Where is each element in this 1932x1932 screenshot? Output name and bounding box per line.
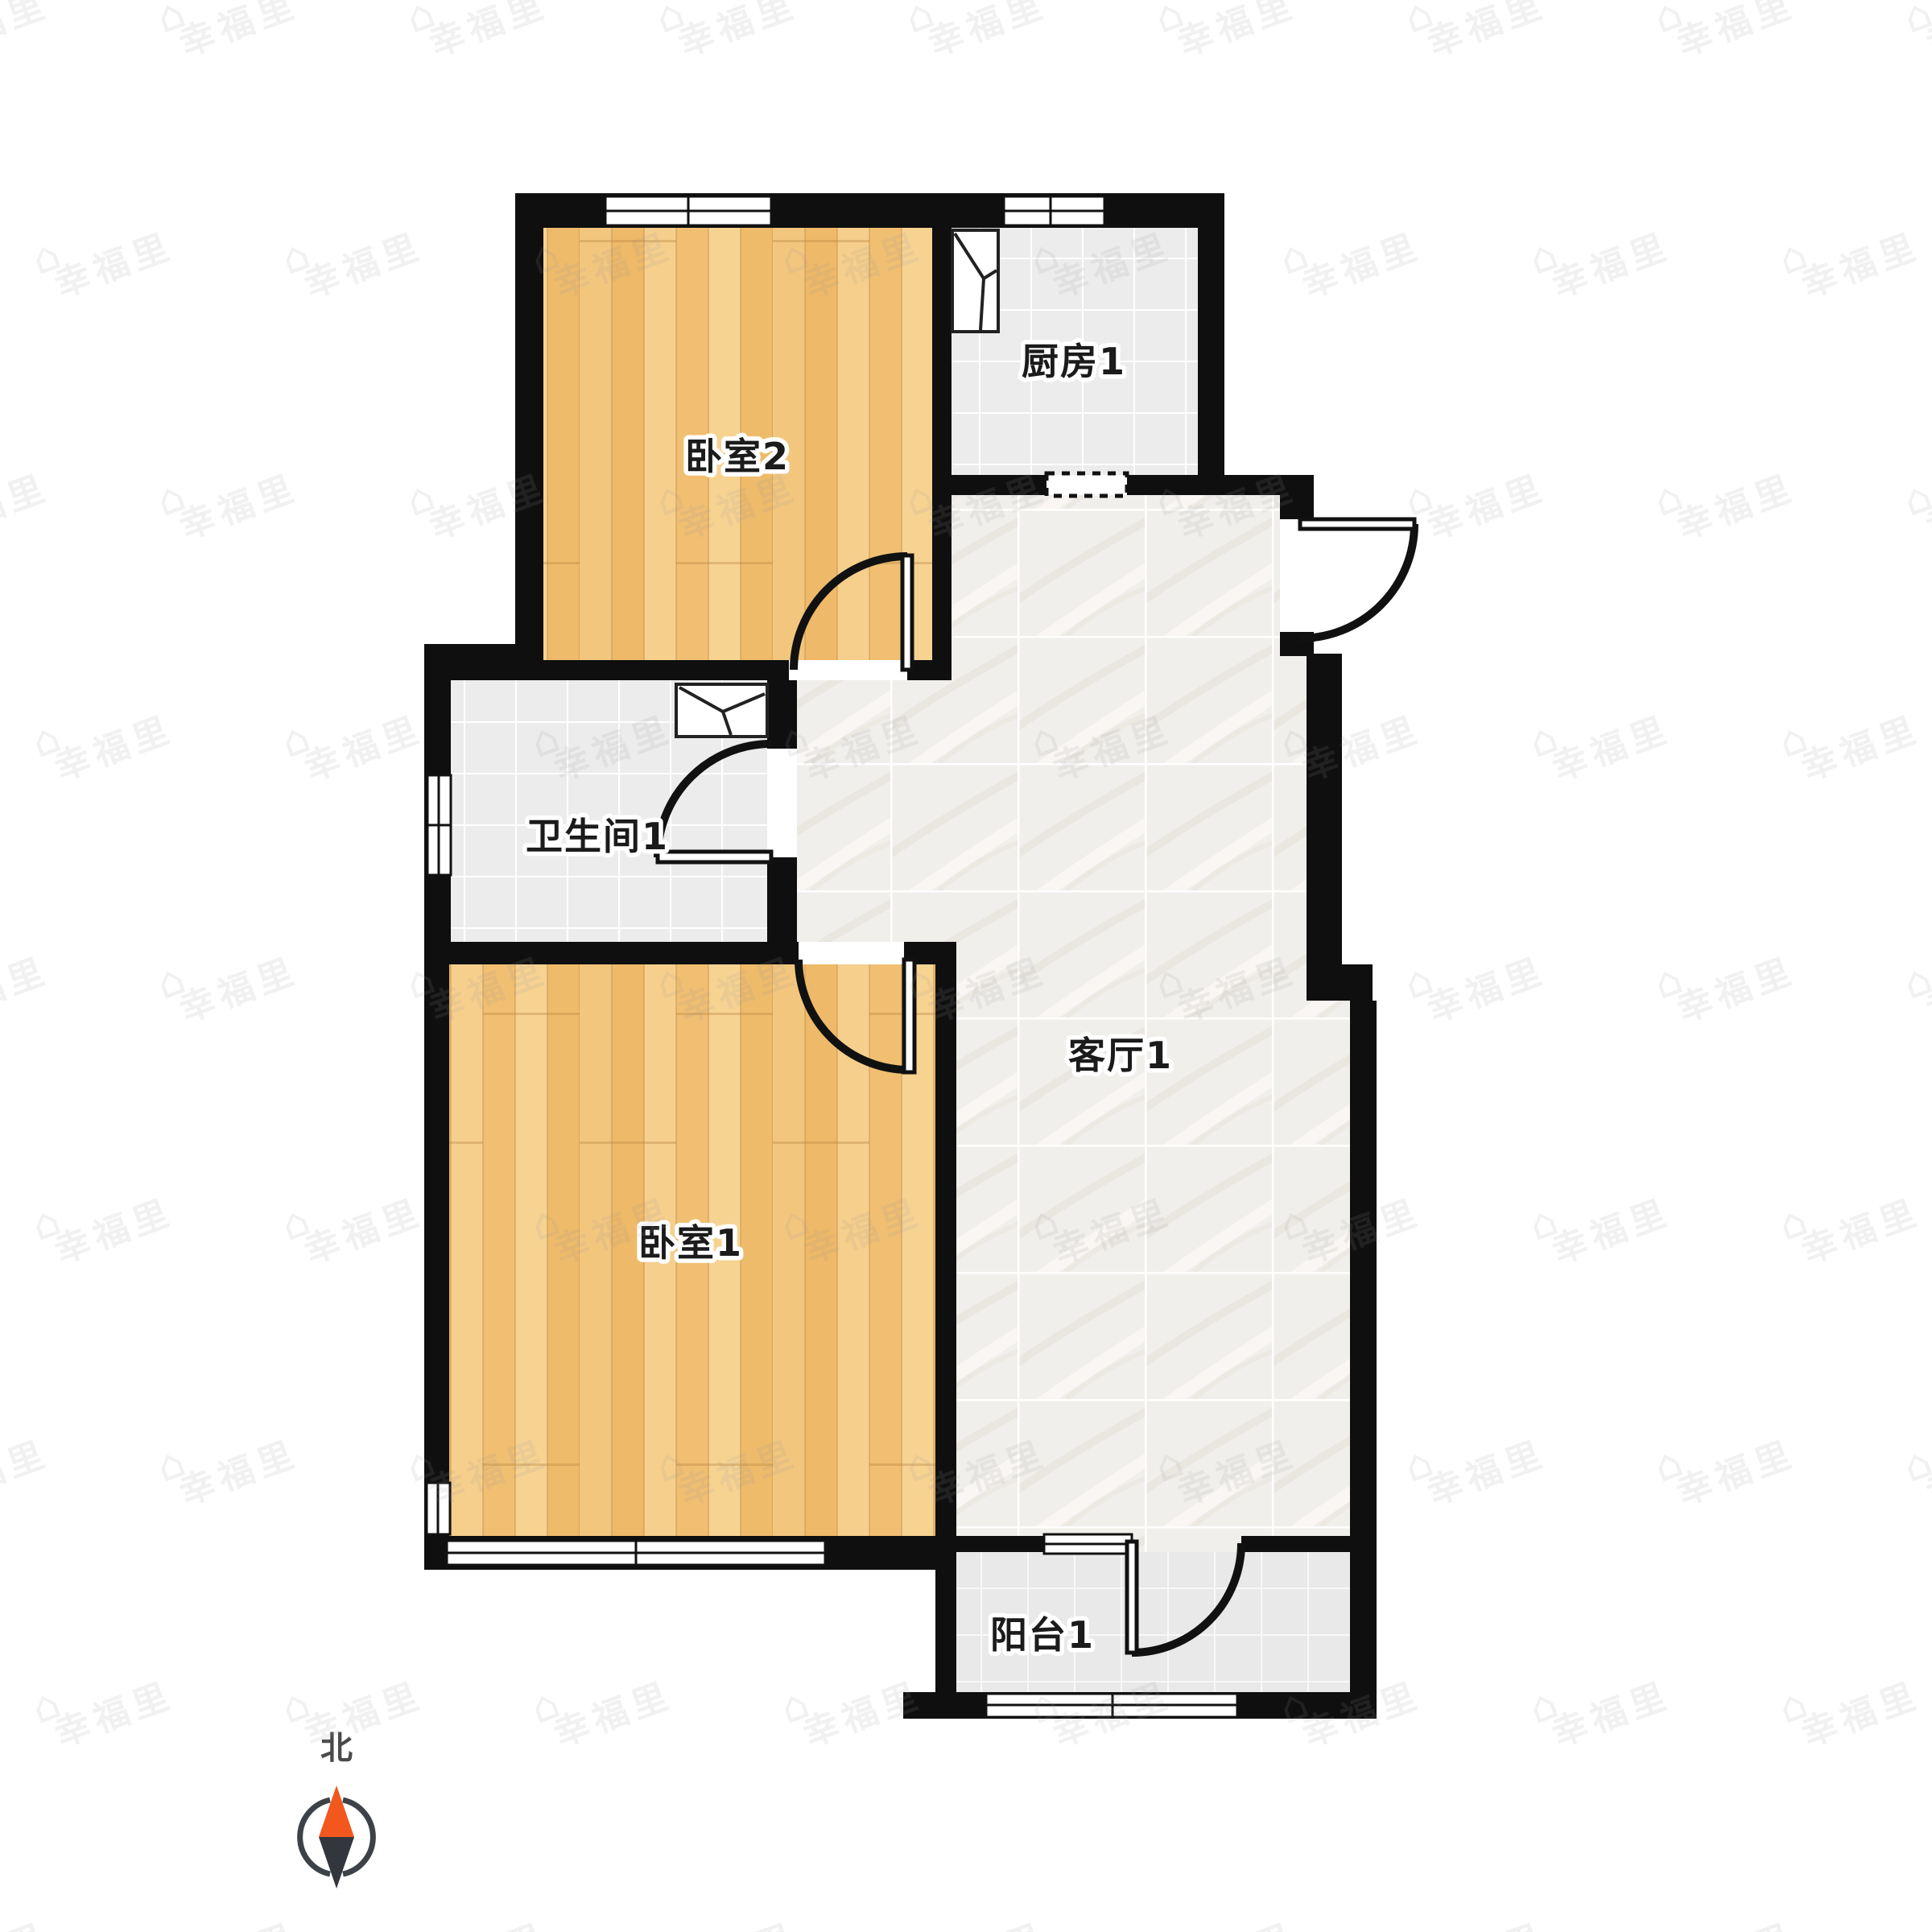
label-living: 客厅1 [1068, 1034, 1173, 1077]
watermark-house-icon: ⌂ [1648, 1921, 1690, 1932]
watermark-text: 幸福里 [1546, 708, 1676, 789]
watermark-text: 幸福里 [673, 1916, 803, 1932]
label-kitchen: 厨房1 [1022, 340, 1126, 383]
window-living-balcony [1044, 1534, 1132, 1554]
watermark-text: 幸福里 [798, 1674, 927, 1755]
watermark-text: 幸福里 [423, 1916, 553, 1932]
watermark-text: 幸福里 [1172, 1916, 1302, 1932]
window-bedroom2-top [605, 196, 771, 225]
watermark-text: 幸福里 [174, 950, 303, 1030]
watermark-item: ⌂幸福里 [0, 0, 55, 69]
watermark-item: ⌂幸福里 [899, 1884, 1053, 1932]
watermark-text: 幸福里 [1671, 1433, 1801, 1513]
watermark-house-icon: ⌂ [1897, 1921, 1932, 1932]
watermark-item: ⌂幸福里 [151, 1401, 304, 1518]
watermark-item: ⌂幸福里 [1398, 918, 1552, 1035]
watermark-text: 幸福里 [299, 1674, 428, 1755]
watermark-text: 幸福里 [1671, 1916, 1801, 1932]
watermark-item: ⌂幸福里 [650, 1884, 803, 1932]
watermark-item: ⌂幸福里 [0, 1401, 55, 1518]
watermark-text: 幸福里 [1671, 467, 1801, 547]
watermark-text: 幸福里 [423, 0, 553, 64]
watermark-item: ⌂幸福里 [650, 0, 803, 69]
watermark-text: 幸福里 [673, 0, 803, 64]
watermark-item: ⌂幸福里 [1773, 1159, 1926, 1277]
watermark-house-icon: ⌂ [400, 1921, 442, 1932]
watermark-item: ⌂幸福里 [1523, 193, 1677, 311]
watermark-item: ⌂幸福里 [899, 0, 1053, 69]
watermark-item: ⌂幸福里 [1398, 1884, 1552, 1932]
window-bedroom1-bottom [447, 1541, 825, 1565]
watermark-house-icon: ⌂ [1398, 1921, 1440, 1932]
watermark-text: 幸福里 [1796, 225, 1926, 306]
compass-needle-south [319, 1837, 354, 1889]
watermark-item: ⌂幸福里 [1897, 435, 1932, 552]
watermark-text: 幸福里 [49, 1191, 179, 1272]
watermark-text: 幸福里 [49, 708, 179, 789]
watermark-text: 幸福里 [1422, 1433, 1551, 1513]
watermark-item: ⌂幸福里 [26, 1159, 180, 1277]
watermark-item: ⌂幸福里 [151, 435, 304, 552]
watermark-text: 幸福里 [1796, 708, 1926, 789]
window-kitchen-top [1004, 196, 1104, 225]
watermark-text: 幸福里 [1796, 1674, 1926, 1755]
watermark-text: 幸福里 [1422, 950, 1551, 1030]
watermark-text: 幸福里 [1422, 1916, 1551, 1932]
watermark-text: 幸福里 [923, 1916, 1052, 1932]
watermark-text: 幸福里 [299, 225, 428, 306]
watermark-text: 幸福里 [49, 1674, 179, 1755]
watermark-text: 幸福里 [1546, 1674, 1676, 1755]
watermark-item: ⌂幸福里 [0, 435, 55, 552]
watermark-item: ⌂幸福里 [151, 918, 304, 1035]
watermark-text: 幸福里 [1796, 1191, 1926, 1272]
watermark-text: 幸福里 [1172, 0, 1302, 64]
watermark-text: 幸福里 [0, 1916, 55, 1932]
watermark-text: 幸福里 [0, 0, 55, 64]
watermark-item: ⌂幸福里 [1274, 193, 1427, 311]
label-balcony: 阳台1 [990, 1613, 1095, 1657]
floorplan-image: 卧室2 厨房1 卫生间1 卧室1 客厅1 阳台1 北 ⌂幸福里⌂幸福里⌂幸福里⌂… [0, 0, 1932, 1932]
watermark-item: ⌂幸福里 [275, 1159, 429, 1277]
watermark-item: ⌂幸福里 [151, 1884, 304, 1932]
watermark-text: 幸福里 [1671, 0, 1801, 64]
watermark-text: 幸福里 [49, 225, 179, 306]
watermark-item: ⌂幸福里 [1149, 0, 1302, 69]
watermark-item: ⌂幸福里 [1398, 435, 1552, 552]
watermark-house-icon: ⌂ [151, 1921, 192, 1932]
watermark-house-icon: ⌂ [650, 1921, 691, 1932]
watermark-item: ⌂幸福里 [275, 193, 429, 311]
watermark-text: 幸福里 [1546, 1191, 1676, 1272]
watermark-house-icon: ⌂ [899, 1921, 941, 1932]
watermark-text: 幸福里 [174, 0, 303, 64]
watermark-item: ⌂幸福里 [400, 1884, 554, 1932]
watermark-item: ⌂幸福里 [1648, 918, 1802, 1035]
watermark-text: 幸福里 [923, 0, 1052, 64]
kitchen-passage-dotted [1046, 473, 1127, 496]
compass: 北 [300, 1730, 374, 1889]
compass-needle-north [319, 1785, 354, 1837]
watermark-item: ⌂幸福里 [26, 676, 180, 794]
watermark-item: ⌂幸福里 [0, 918, 55, 1035]
watermark-item: ⌂幸福里 [1897, 918, 1932, 1035]
watermark-item: ⌂幸福里 [151, 0, 304, 69]
watermark-item: ⌂幸福里 [525, 1642, 679, 1760]
watermark-text: 幸福里 [174, 1916, 303, 1932]
watermark-item: ⌂幸福里 [1773, 193, 1926, 311]
watermark-item: ⌂幸福里 [0, 1884, 55, 1932]
watermark-text: 幸福里 [548, 1674, 678, 1755]
watermark-text: 幸福里 [1297, 225, 1426, 306]
watermark-text: 幸福里 [0, 467, 55, 547]
watermark-text: 幸福里 [0, 1433, 55, 1513]
watermark-item: ⌂幸福里 [774, 1642, 928, 1760]
window-bathroom-left [427, 775, 451, 875]
watermark-text: 幸福里 [299, 1191, 428, 1272]
watermark-text: 幸福里 [299, 708, 428, 789]
watermark-item: ⌂幸福里 [1773, 1642, 1926, 1760]
watermark-text: 幸福里 [174, 1433, 303, 1513]
watermark-item: ⌂幸福里 [1648, 1401, 1802, 1518]
watermark-text: 幸福里 [1671, 950, 1801, 1030]
watermark-text: 幸福里 [1422, 0, 1551, 64]
watermark-text: 幸福里 [0, 950, 55, 1030]
watermark-item: ⌂幸福里 [1398, 0, 1552, 69]
watermark-text: 幸福里 [174, 467, 303, 547]
watermark-item: ⌂幸福里 [1897, 0, 1932, 69]
watermark-item: ⌂幸福里 [1398, 1401, 1552, 1518]
watermark-item: ⌂幸福里 [1897, 1401, 1932, 1518]
floorplan-svg: 卧室2 厨房1 卫生间1 卧室1 客厅1 阳台1 北 ⌂幸福里⌂幸福里⌂幸福里⌂… [0, 0, 1932, 1932]
watermark-text: 幸福里 [1422, 467, 1551, 547]
watermark-text: 幸福里 [1546, 225, 1676, 306]
watermark-house-icon: ⌂ [1149, 1921, 1191, 1932]
label-bathroom: 卫生间1 [526, 815, 669, 858]
watermark-item: ⌂幸福里 [400, 0, 554, 69]
watermark-item: ⌂幸福里 [1523, 676, 1677, 794]
watermark-item: ⌂幸福里 [1773, 676, 1926, 794]
watermark-item: ⌂幸福里 [26, 1642, 180, 1760]
washing-machine-icon [676, 684, 767, 737]
door-entry [1300, 519, 1414, 638]
watermark-item: ⌂幸福里 [1523, 1642, 1677, 1760]
watermark-item: ⌂幸福里 [1149, 1884, 1302, 1932]
watermark-item: ⌂幸福里 [1648, 1884, 1802, 1932]
watermark-item: ⌂幸福里 [1897, 1884, 1932, 1932]
watermark-item: ⌂幸福里 [1523, 1159, 1677, 1277]
watermark-item: ⌂幸福里 [1648, 0, 1802, 69]
watermark-item: ⌂幸福里 [275, 676, 429, 794]
fridge-icon [952, 230, 998, 332]
watermark-item: ⌂幸福里 [1648, 435, 1802, 552]
watermark-item: ⌂幸福里 [26, 193, 180, 311]
